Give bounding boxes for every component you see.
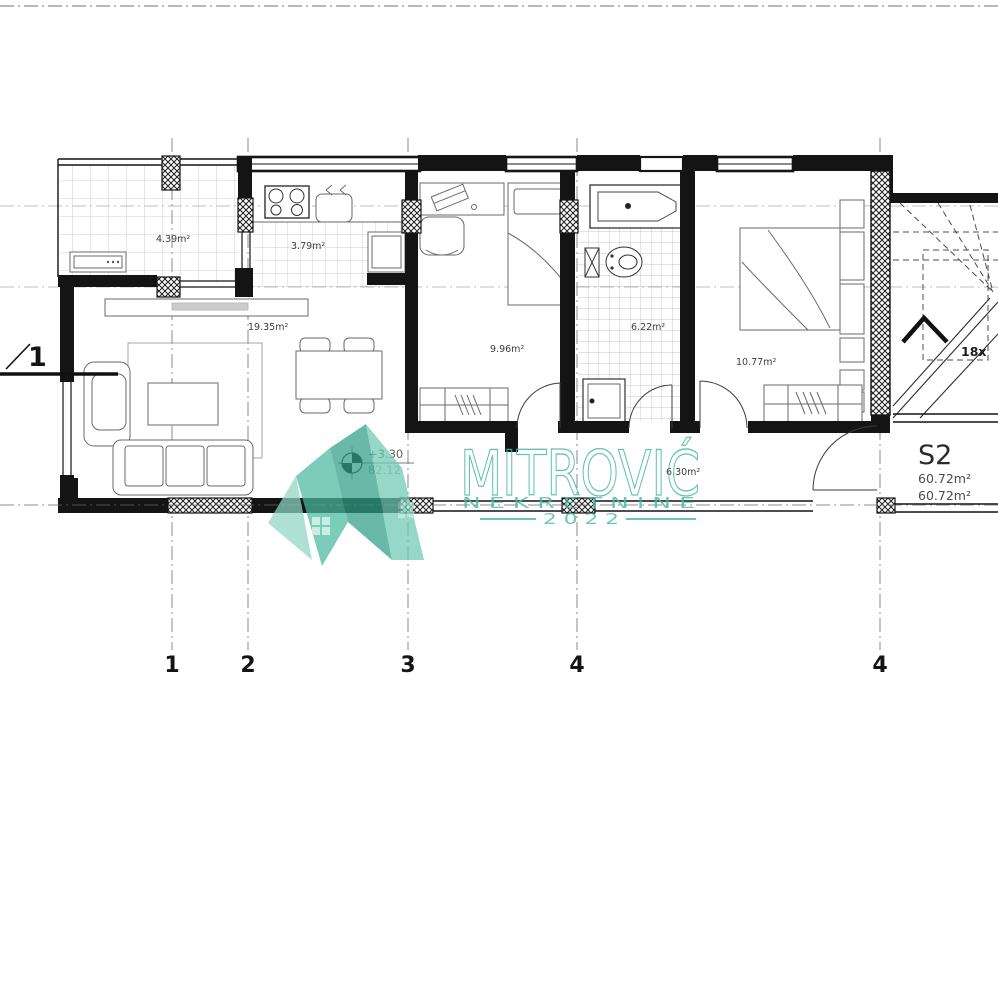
- entrance-door: [813, 426, 877, 490]
- axis-label-4b: 4: [872, 653, 887, 678]
- unit-area1: 60.72m²: [918, 471, 971, 486]
- floor-plan-drawing: +3.30 82.12 4.39m² 3.79m² 19.35m² 9.96m²…: [0, 0, 998, 983]
- axis-labels: 1 2 3 4 4: [164, 653, 887, 678]
- washing-machine-icon: [583, 379, 625, 423]
- terrace-area-label: 4.39m²: [156, 234, 190, 245]
- kitchen-appliance: [368, 232, 405, 272]
- stair-count-label: 18x: [961, 344, 986, 359]
- kitchen-area-label: 3.79m²: [291, 241, 325, 252]
- desk-chair: [420, 217, 464, 255]
- sofa: [113, 440, 253, 495]
- headboard-shelf: [840, 200, 864, 412]
- bathroom-area-label: 6.22m²: [631, 322, 665, 333]
- wardrobe-bedroom1: [420, 388, 508, 423]
- single-bed: [508, 183, 568, 305]
- living-area-label: 19.35m²: [248, 322, 288, 333]
- stove-icon: [265, 186, 309, 218]
- terrace-planter: [70, 252, 126, 272]
- stair-direction-arrow: [903, 318, 947, 342]
- stairwell: [893, 203, 998, 418]
- unit-id: S2: [918, 440, 952, 471]
- tv-cabinet: [105, 299, 308, 316]
- watermark: MITROVIĆ N E K R E T N I N E 2 0 2 2: [268, 424, 700, 566]
- axis-label-2: 2: [240, 653, 255, 678]
- axis-label-4: 4: [569, 653, 584, 678]
- wardrobe-bedroom2: [764, 385, 862, 423]
- watermark-logo-icon: [268, 424, 424, 566]
- bedroom2-furniture: [740, 200, 864, 423]
- floor-plan-canvas: +3.30 82.12 4.39m² 3.79m² 19.35m² 9.96m²…: [0, 0, 998, 983]
- axis-label-1: 1: [164, 653, 179, 678]
- living-room-window-west: [60, 377, 74, 480]
- watermark-year: 2 0 2 2: [543, 510, 619, 528]
- kitchen-terrace-door: [242, 232, 250, 268]
- bedroom1-furniture: [420, 183, 568, 423]
- unit-area2: 60.72m²: [918, 488, 971, 503]
- bedroom2-area-label: 10.77m²: [736, 357, 776, 368]
- double-bed: [740, 228, 840, 330]
- toilet-icon: [585, 247, 642, 277]
- section-number: 1: [28, 342, 47, 373]
- bedroom1-area-label: 9.96m²: [490, 344, 524, 355]
- bathtub-icon: [590, 185, 682, 228]
- bedroom1-door: [517, 383, 560, 428]
- sink-icon: [316, 185, 352, 222]
- axis-label-3: 3: [400, 653, 415, 678]
- bedroom2-door: [700, 381, 747, 428]
- coffee-table: [148, 383, 218, 425]
- unit-label: S2 60.72m² 60.72m²: [918, 440, 971, 503]
- dining-set: [296, 338, 382, 413]
